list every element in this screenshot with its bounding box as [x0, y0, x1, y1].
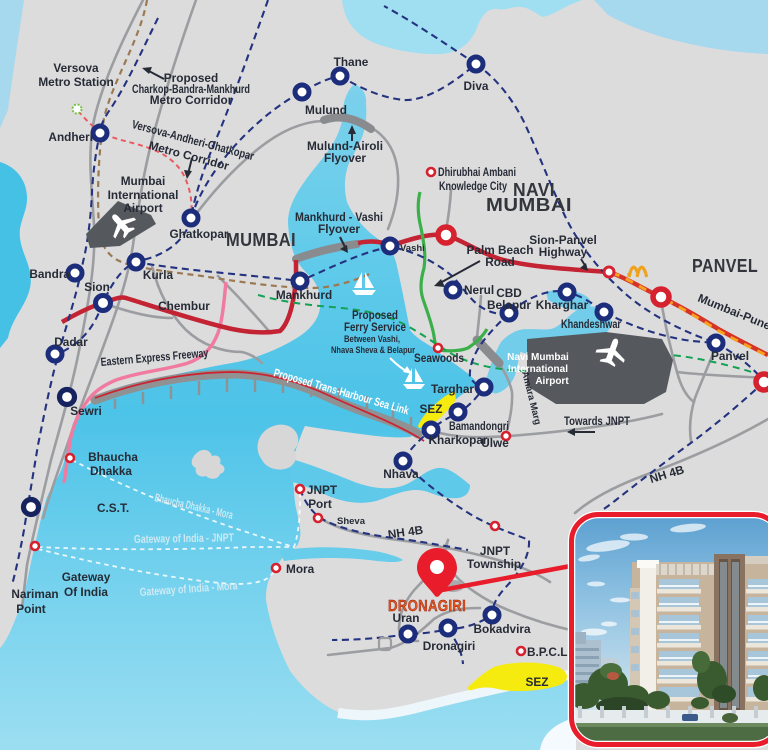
svg-text:Mulund: Mulund: [305, 103, 347, 117]
svg-text:Kurla: Kurla: [143, 268, 174, 282]
svg-text:Dadar: Dadar: [54, 335, 88, 349]
svg-text:Ferry Service: Ferry Service: [344, 320, 406, 334]
svg-text:JNPT: JNPT: [480, 544, 511, 558]
svg-text:Bamandongri: Bamandongri: [449, 419, 509, 433]
svg-text:Metro Station: Metro Station: [38, 75, 113, 89]
svg-text:PANVEL: PANVEL: [692, 255, 758, 276]
svg-text:Versova: Versova: [53, 61, 99, 75]
svg-text:Flyover: Flyover: [324, 151, 366, 165]
svg-text:Metro Corridor: Metro Corridor: [150, 93, 233, 107]
svg-text:Nhava: Nhava: [383, 467, 419, 481]
svg-text:Mankhurd: Mankhurd: [276, 288, 332, 302]
svg-text:Sheva: Sheva: [337, 516, 366, 527]
svg-text:Between Vashi,: Between Vashi,: [344, 334, 400, 345]
svg-text:Nerul: Nerul: [464, 283, 494, 297]
svg-text:Nariman: Nariman: [11, 587, 58, 601]
svg-text:Sion: Sion: [84, 280, 110, 294]
svg-text:Andheri: Andheri: [48, 130, 93, 144]
svg-text:Gateway: Gateway: [62, 570, 111, 584]
svg-text:Mumbai: Mumbai: [121, 174, 166, 188]
svg-text:Of India: Of India: [64, 585, 108, 599]
svg-text:Sewri: Sewri: [70, 404, 101, 418]
svg-text:Bhaucha: Bhaucha: [88, 450, 138, 464]
svg-text:Bandra: Bandra: [29, 267, 70, 281]
svg-text:SEZ: SEZ: [526, 675, 549, 689]
svg-text:Vashi: Vashi: [400, 243, 425, 254]
svg-text:Dhirubhai Ambani: Dhirubhai Ambani: [438, 165, 516, 179]
svg-text:Uran: Uran: [393, 611, 420, 625]
svg-text:Township: Township: [467, 557, 521, 571]
svg-text:Airport: Airport: [123, 201, 162, 215]
svg-text:Bokadvira: Bokadvira: [473, 622, 530, 636]
svg-text:Panvel: Panvel: [711, 349, 749, 363]
svg-text:Dhakka: Dhakka: [90, 464, 132, 478]
svg-text:Diva: Diva: [464, 79, 489, 93]
svg-text:Towards JNPT: Towards JNPT: [564, 414, 631, 428]
svg-text:SEZ: SEZ: [420, 402, 443, 416]
svg-text:Belapur: Belapur: [487, 298, 531, 312]
svg-text:Kharghar: Kharghar: [536, 298, 589, 312]
svg-text:International: International: [508, 364, 568, 375]
svg-text:Khandeshwar: Khandeshwar: [561, 317, 621, 331]
svg-text:Port: Port: [308, 497, 332, 511]
svg-text:Dronagiri: Dronagiri: [423, 639, 475, 653]
svg-text:B.P.C.L.: B.P.C.L.: [527, 645, 571, 659]
svg-text:MUMBAI: MUMBAI: [486, 194, 572, 215]
svg-text:Airport: Airport: [535, 376, 569, 387]
svg-text:Navi Mumbai: Navi Mumbai: [507, 352, 569, 363]
svg-text:Nhava Sheva & Belapur: Nhava Sheva & Belapur: [331, 345, 415, 356]
svg-text:Ulwe: Ulwe: [481, 436, 509, 450]
svg-text:Seawoods: Seawoods: [414, 351, 464, 365]
svg-text:International: International: [108, 188, 179, 202]
svg-text:Flyover: Flyover: [318, 222, 360, 236]
svg-text:Ghatkopar: Ghatkopar: [170, 227, 229, 241]
svg-text:Mora: Mora: [286, 562, 315, 576]
svg-text:Point: Point: [16, 602, 46, 616]
svg-text:Road: Road: [485, 255, 515, 269]
svg-text:C.S.T.: C.S.T.: [97, 501, 129, 515]
svg-text:Targhar: Targhar: [431, 382, 474, 396]
svg-text:Chembur: Chembur: [158, 299, 210, 313]
svg-text:Gateway of India - JNPT: Gateway of India - JNPT: [134, 532, 234, 546]
svg-text:MUMBAI: MUMBAI: [226, 229, 296, 250]
svg-text:Thane: Thane: [334, 55, 369, 69]
svg-text:Knowledge City: Knowledge City: [439, 179, 507, 193]
svg-text:JNPT: JNPT: [307, 483, 338, 497]
svg-text:Highway: Highway: [539, 245, 588, 259]
svg-text:Kharkopar: Kharkopar: [428, 433, 487, 447]
